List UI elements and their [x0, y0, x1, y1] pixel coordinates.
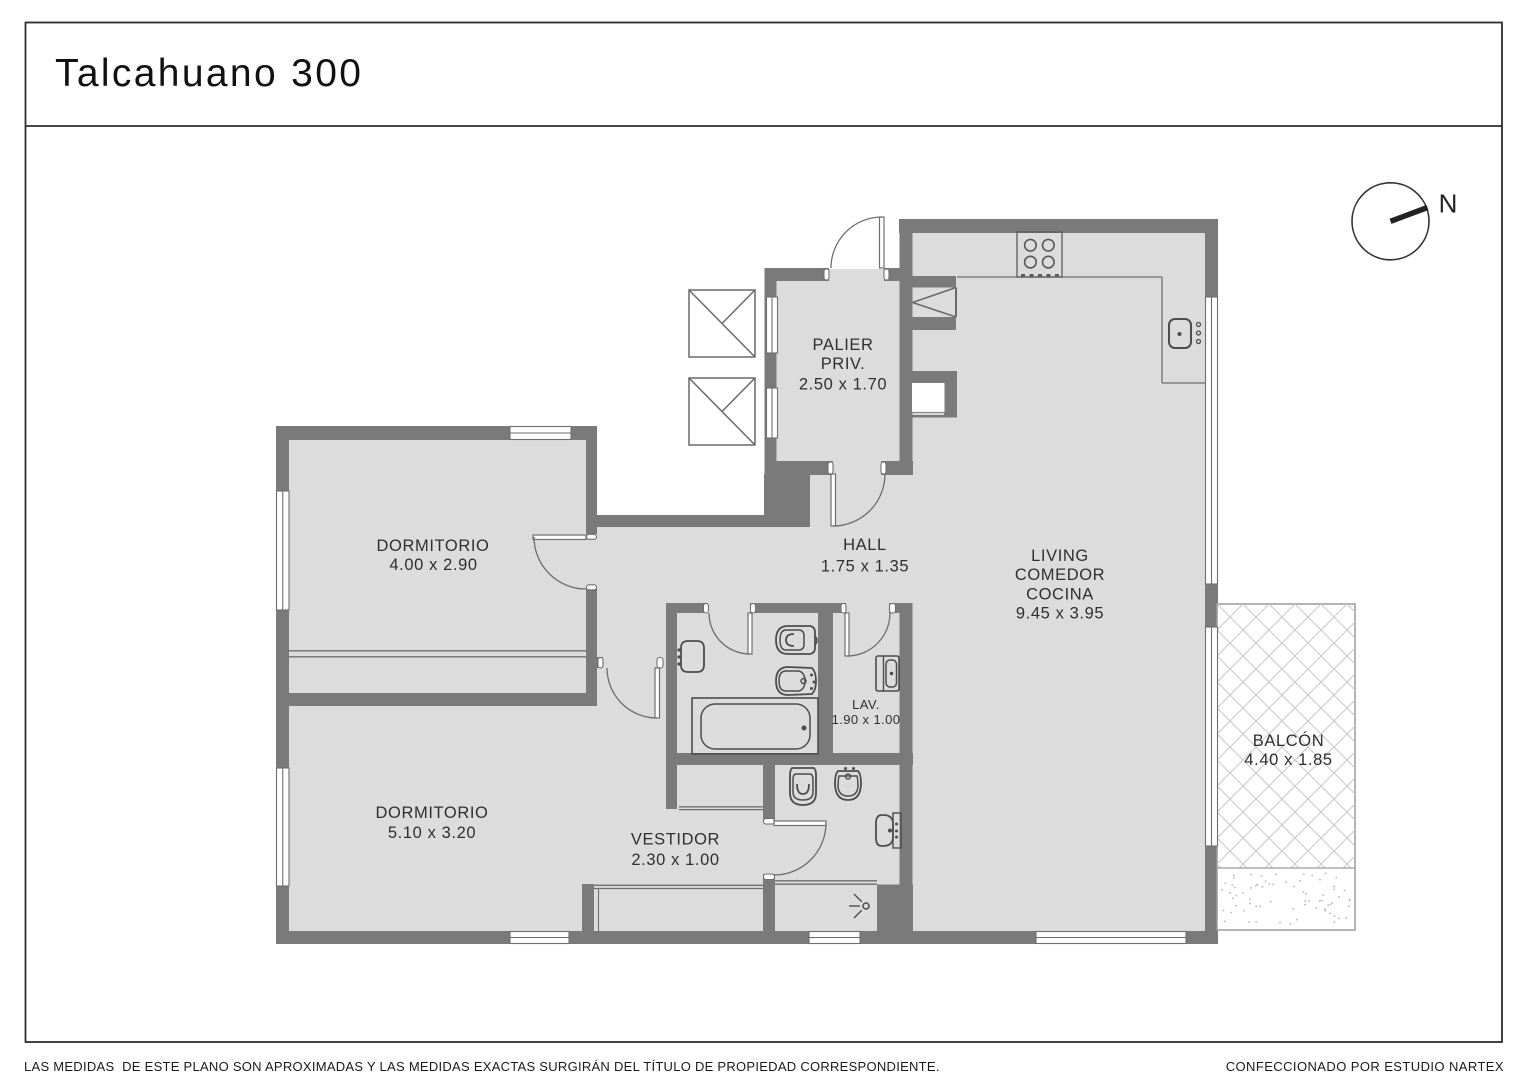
svg-text:2.30 x 1.00: 2.30 x 1.00 — [631, 851, 719, 869]
svg-text:9.45 x 3.95: 9.45 x 3.95 — [1016, 605, 1104, 623]
svg-text:1.75 x 1.35: 1.75 x 1.35 — [821, 558, 909, 576]
svg-text:DORMITORIO: DORMITORIO — [377, 537, 490, 555]
svg-text:BALCÓN: BALCÓN — [1253, 731, 1324, 750]
svg-text:2.50 x 1.70: 2.50 x 1.70 — [799, 376, 887, 394]
svg-text:LAS MEDIDAS DE ESTE PLANO SON: LAS MEDIDAS DE ESTE PLANO SON APROXIMADA… — [24, 1059, 940, 1074]
svg-text:PRIV.: PRIV. — [821, 355, 866, 373]
svg-text:VESTIDOR: VESTIDOR — [631, 831, 720, 849]
svg-text:LIVING: LIVING — [1031, 547, 1089, 565]
svg-text:COCINA: COCINA — [1026, 586, 1094, 604]
svg-text:LAV.: LAV. — [852, 697, 880, 712]
svg-text:4.40 x 1.85: 4.40 x 1.85 — [1244, 751, 1332, 769]
svg-text:1.90 x 1.00: 1.90 x 1.00 — [832, 712, 901, 727]
svg-text:Talcahuano 300: Talcahuano 300 — [55, 52, 363, 95]
svg-text:4.00 x 2.90: 4.00 x 2.90 — [389, 556, 477, 574]
svg-text:DORMITORIO: DORMITORIO — [376, 804, 489, 822]
svg-text:PALIER: PALIER — [812, 336, 873, 354]
svg-text:N: N — [1439, 189, 1458, 219]
svg-text:COMEDOR: COMEDOR — [1015, 566, 1105, 584]
svg-text:5.10 x 3.20: 5.10 x 3.20 — [388, 824, 476, 842]
svg-text:HALL: HALL — [843, 536, 887, 554]
svg-text:CONFECCIONADO POR ESTUDIO NART: CONFECCIONADO POR ESTUDIO NARTEX — [1226, 1059, 1504, 1074]
